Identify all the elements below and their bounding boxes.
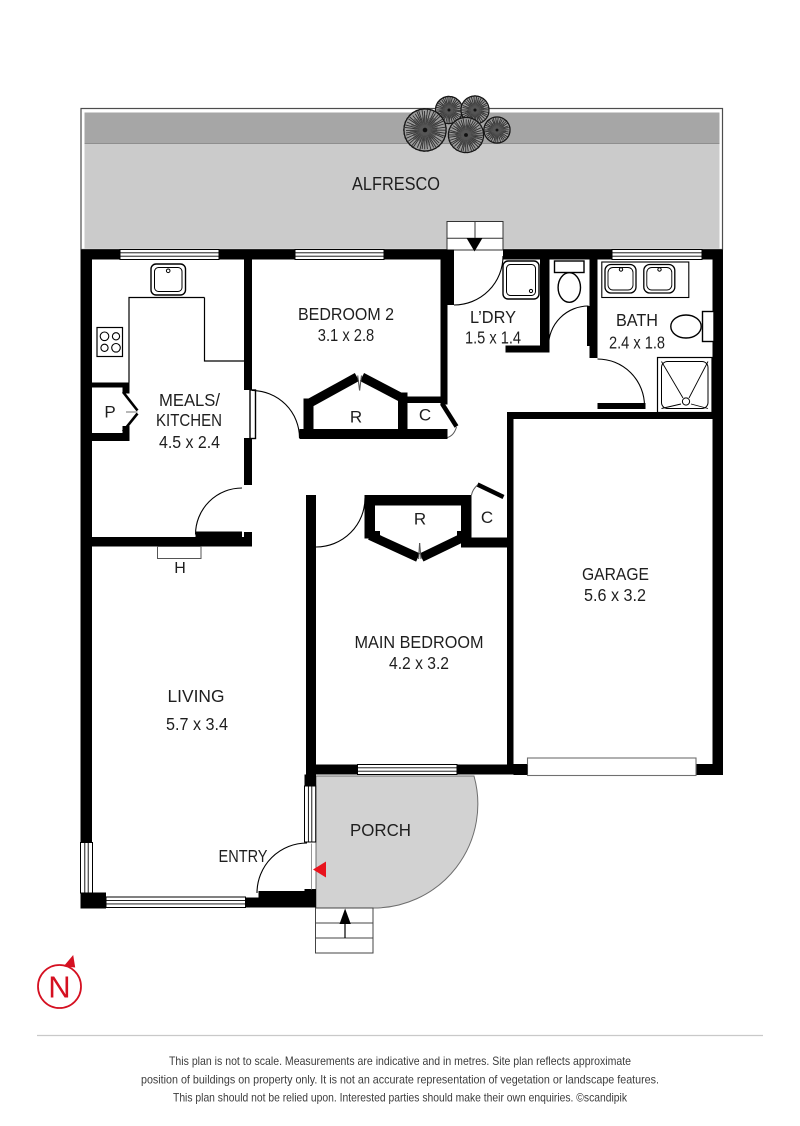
- svg-text:KITCHEN: KITCHEN: [156, 410, 222, 430]
- svg-text:2.4 x 1.8: 2.4 x 1.8: [609, 333, 665, 353]
- svg-text:BATH: BATH: [616, 310, 658, 330]
- svg-text:position of buildings on prope: position of buildings on property only. …: [141, 1074, 659, 1087]
- svg-text:MEALS/: MEALS/: [159, 390, 220, 410]
- svg-text:R: R: [350, 408, 362, 427]
- svg-text:GARAGE: GARAGE: [582, 564, 649, 584]
- svg-text:C: C: [419, 406, 431, 425]
- svg-text:4.5 x 2.4: 4.5 x 2.4: [159, 432, 220, 452]
- svg-text:BEDROOM 2: BEDROOM 2: [298, 304, 394, 324]
- svg-text:5.7 x 3.4: 5.7 x 3.4: [166, 714, 228, 734]
- svg-text:R: R: [414, 510, 426, 529]
- svg-text:4.2 x 3.2: 4.2 x 3.2: [389, 653, 449, 673]
- svg-text:N: N: [48, 970, 70, 1005]
- svg-text:P: P: [104, 403, 115, 422]
- svg-text:1.5 x 1.4: 1.5 x 1.4: [465, 328, 521, 348]
- svg-text:PORCH: PORCH: [350, 820, 411, 840]
- svg-text:C: C: [481, 508, 493, 527]
- svg-text:LIVING: LIVING: [168, 686, 225, 706]
- svg-text:ALFRESCO: ALFRESCO: [352, 174, 440, 194]
- svg-text:ENTRY: ENTRY: [219, 846, 268, 866]
- svg-text:This plan should not be relied: This plan should not be relied upon. Int…: [173, 1092, 627, 1105]
- svg-text:This plan is not to scale. Mea: This plan is not to scale. Measurements …: [169, 1055, 631, 1068]
- svg-text:H: H: [174, 560, 186, 577]
- svg-text:MAIN BEDROOM: MAIN BEDROOM: [355, 632, 484, 652]
- svg-text:5.6 x 3.2: 5.6 x 3.2: [584, 585, 646, 605]
- svg-text:L’DRY: L’DRY: [470, 307, 516, 327]
- svg-text:3.1 x 2.8: 3.1 x 2.8: [318, 325, 375, 345]
